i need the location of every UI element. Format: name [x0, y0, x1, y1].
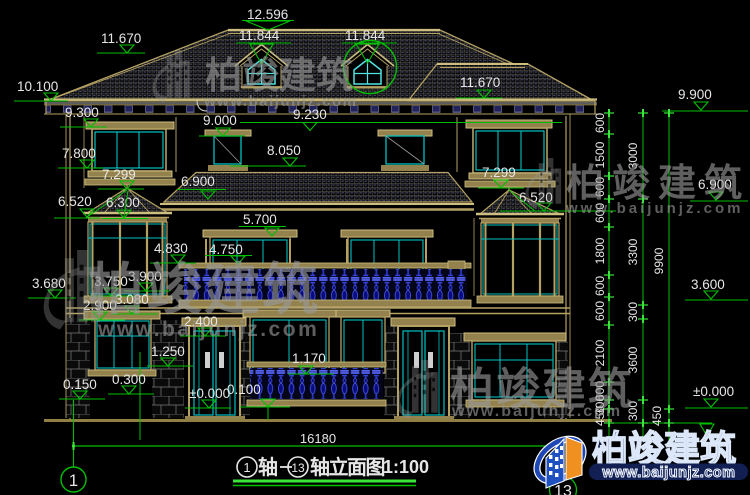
svg-text:1: 1	[69, 471, 78, 490]
svg-text:600: 600	[593, 276, 607, 296]
svg-text:轴立面图: 轴立面图	[310, 455, 384, 479]
svg-text:柏竣建筑: 柏竣建筑	[566, 163, 750, 205]
svg-text:16180: 16180	[300, 431, 336, 446]
svg-text:9900: 9900	[652, 247, 666, 274]
svg-text:7.800: 7.800	[62, 146, 96, 161]
svg-text:3.600: 3.600	[691, 277, 725, 292]
svg-text:10.100: 10.100	[17, 79, 58, 94]
svg-text:6.520: 6.520	[58, 194, 92, 209]
svg-text:柏竣建筑: 柏竣建筑	[88, 258, 320, 321]
svg-text:11.670: 11.670	[101, 31, 141, 46]
svg-text:8.050: 8.050	[267, 143, 301, 158]
svg-text:11.670: 11.670	[460, 75, 500, 90]
svg-text:0.100: 0.100	[227, 382, 261, 397]
svg-text:6.300: 6.300	[106, 195, 140, 210]
svg-text:13: 13	[554, 483, 572, 495]
svg-text:13: 13	[291, 461, 305, 475]
svg-text:4.750: 4.750	[209, 242, 243, 257]
svg-text:1:100: 1:100	[383, 457, 429, 477]
svg-text:±0.000: ±0.000	[189, 386, 230, 401]
svg-text:1: 1	[243, 460, 250, 475]
svg-text:450: 450	[650, 406, 664, 426]
svg-text:600: 600	[593, 113, 607, 133]
svg-text:600: 600	[593, 301, 607, 321]
svg-text:12.596: 12.596	[247, 7, 288, 22]
svg-text:1800: 1800	[593, 237, 607, 264]
svg-text:9.300: 9.300	[65, 105, 99, 120]
svg-text:www.baijunjz.com: www.baijunjz.com	[601, 465, 735, 481]
svg-text:7.299: 7.299	[482, 165, 516, 180]
svg-text:5.700: 5.700	[243, 212, 277, 227]
svg-text:±0.000: ±0.000	[693, 384, 734, 399]
svg-text:www.baijunjz.com: www.baijunjz.com	[203, 93, 357, 110]
svg-text:轴: 轴	[258, 455, 278, 479]
svg-text:3300: 3300	[626, 238, 640, 265]
svg-text:www.baijunjz.com: www.baijunjz.com	[565, 200, 743, 217]
svg-text:1.250: 1.250	[151, 344, 185, 359]
svg-text:柏竣建筑: 柏竣建筑	[592, 428, 736, 469]
svg-text:300: 300	[626, 302, 640, 322]
svg-text:7.299: 7.299	[102, 167, 136, 182]
svg-text:6.900: 6.900	[181, 174, 215, 189]
svg-text:9.000: 9.000	[203, 113, 237, 128]
svg-text:4.830: 4.830	[154, 241, 188, 256]
svg-text:0.150: 0.150	[63, 377, 97, 392]
svg-text:0.300: 0.300	[112, 372, 146, 387]
svg-text:11.844: 11.844	[345, 28, 386, 43]
svg-text:www.baijunjz.com: www.baijunjz.com	[97, 318, 319, 341]
svg-text:1.170: 1.170	[292, 351, 326, 366]
svg-text:11.844: 11.844	[239, 28, 280, 43]
svg-text:柏竣建筑: 柏竣建筑	[205, 54, 353, 96]
svg-text:www.baijunjz.com: www.baijunjz.com	[451, 403, 622, 420]
svg-text:9.900: 9.900	[678, 87, 712, 102]
svg-text:2100: 2100	[593, 339, 607, 366]
